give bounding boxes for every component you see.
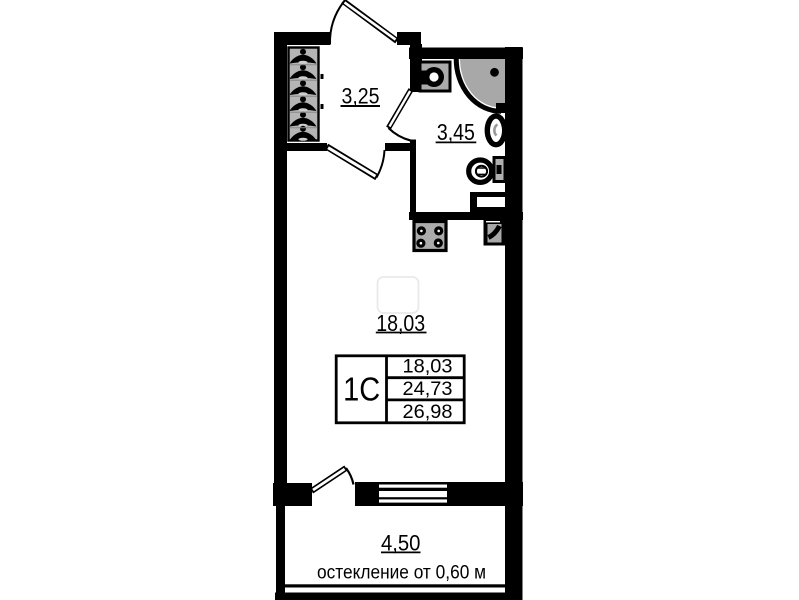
svg-text:остекление от 0,60 м: остекление от 0,60 м <box>317 562 486 584</box>
svg-text:26,98: 26,98 <box>403 401 453 423</box>
svg-text:3,45: 3,45 <box>437 119 475 145</box>
svg-text:3,25: 3,25 <box>342 83 380 108</box>
svg-text:18,03: 18,03 <box>403 356 453 378</box>
svg-text:24,73: 24,73 <box>403 378 453 400</box>
svg-text:1C: 1C <box>343 371 380 408</box>
